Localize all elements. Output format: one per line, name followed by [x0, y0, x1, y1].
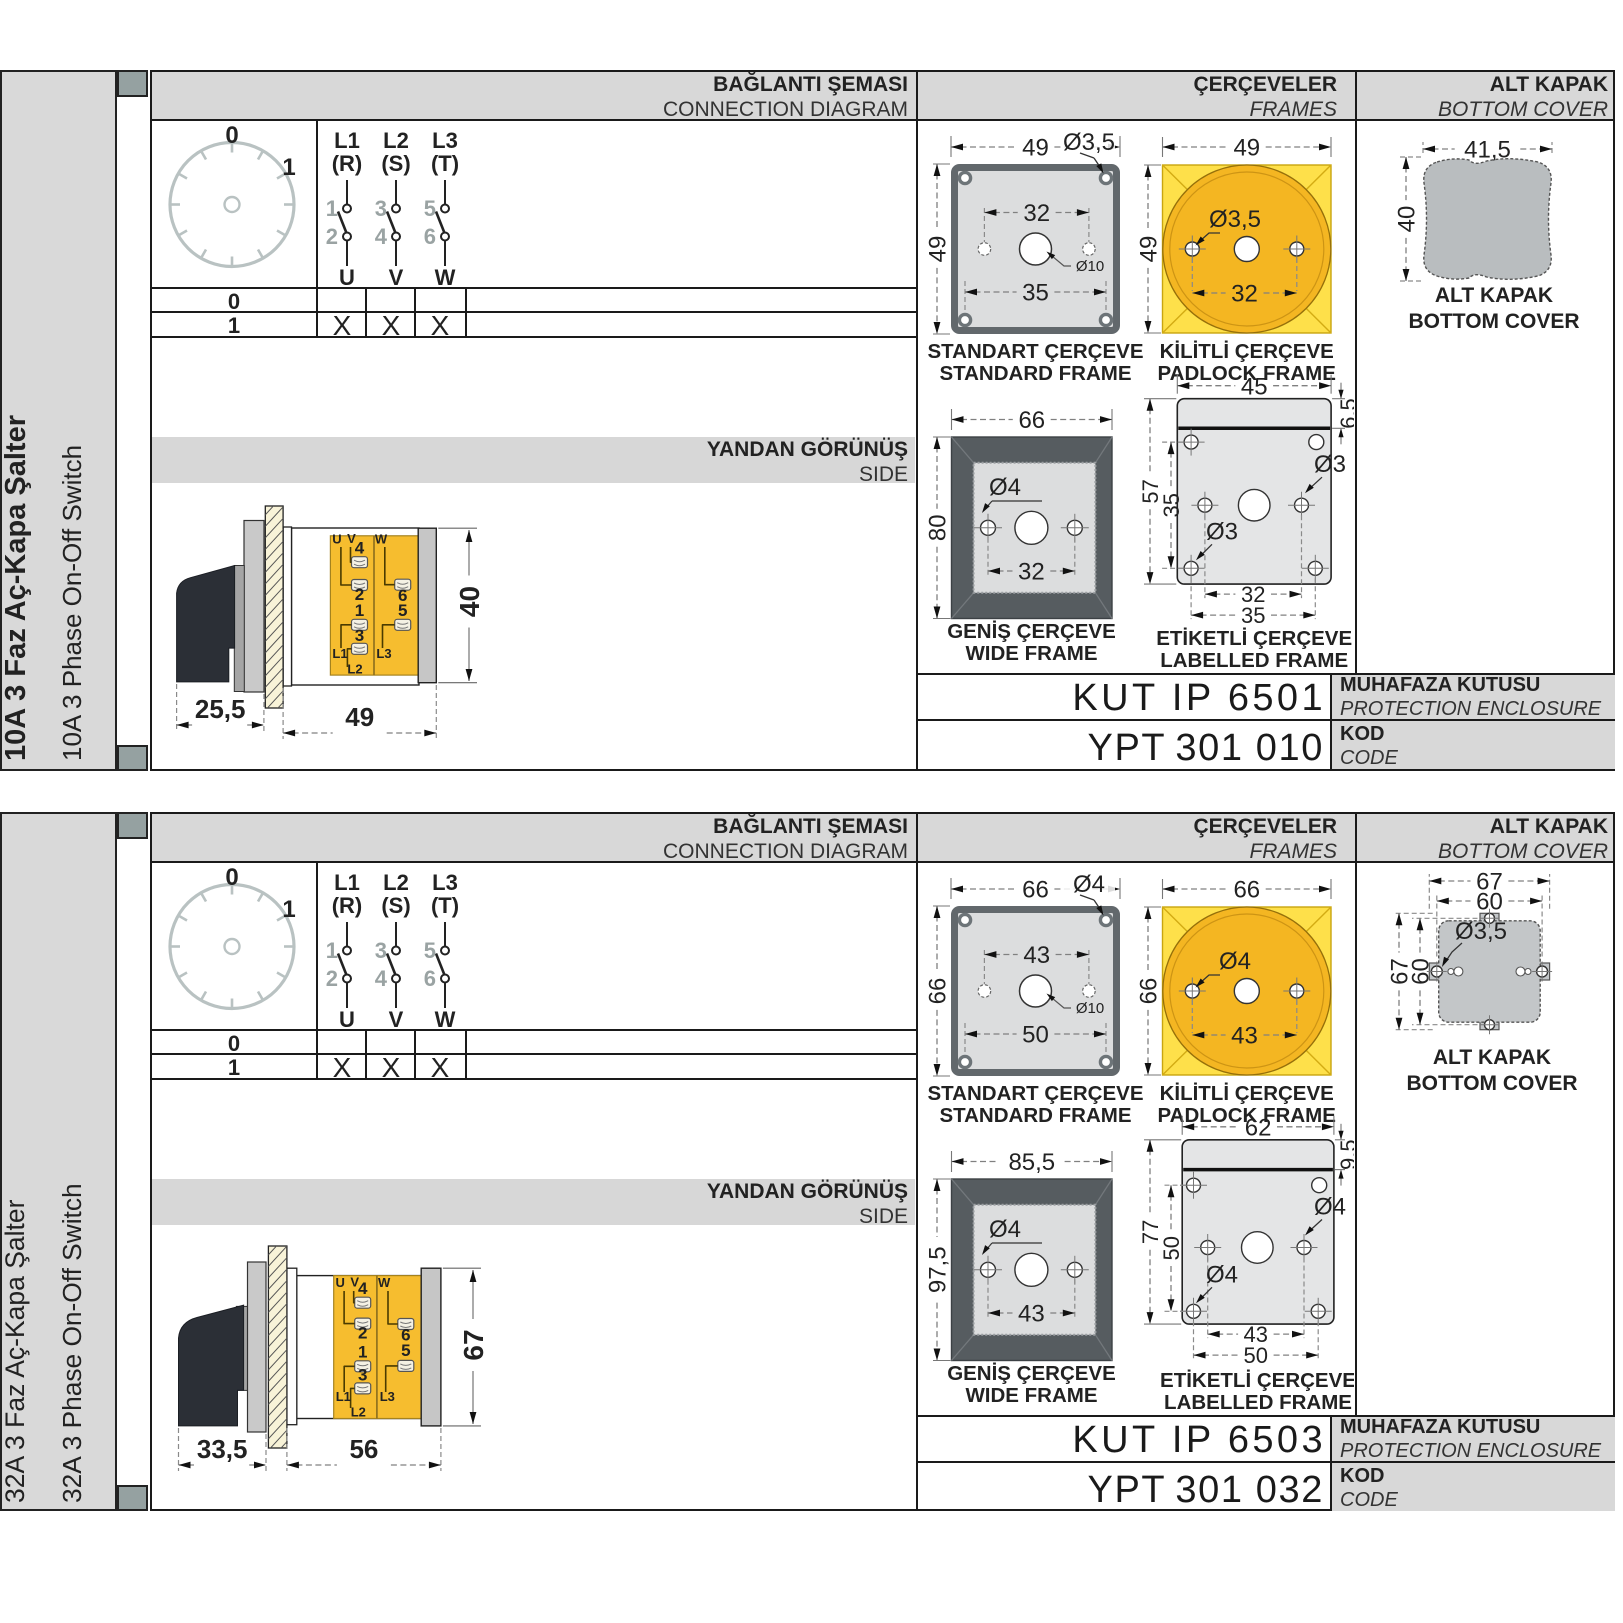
svg-text:W: W	[375, 531, 388, 546]
svg-text:1: 1	[282, 896, 295, 923]
svg-text:50: 50	[1244, 1343, 1268, 1368]
svg-text:LABELLED FRAME: LABELLED FRAME	[1164, 1391, 1352, 1413]
svg-text:4: 4	[375, 224, 388, 249]
svg-text:V: V	[389, 1007, 404, 1030]
svg-text:Ø4: Ø4	[1219, 948, 1251, 975]
svg-text:(R): (R)	[332, 151, 363, 176]
svg-text:W: W	[435, 1007, 456, 1030]
svg-text:L3: L3	[376, 646, 391, 661]
svg-text:2: 2	[358, 1324, 367, 1343]
svg-text:U: U	[339, 265, 355, 288]
svg-text:ETİKETLİ ÇERÇEVE: ETİKETLİ ÇERÇEVE	[1160, 1369, 1354, 1392]
svg-text:5: 5	[401, 1341, 410, 1360]
svg-text:5: 5	[424, 938, 436, 963]
svg-text:60: 60	[1476, 889, 1503, 916]
svg-text:50: 50	[1022, 1022, 1049, 1049]
svg-text:GENİŞ ÇERÇEVE: GENİŞ ÇERÇEVE	[947, 1362, 1116, 1385]
svg-text:66: 66	[1018, 407, 1045, 434]
svg-text:56: 56	[349, 1434, 378, 1464]
svg-text:Ø4: Ø4	[1073, 871, 1105, 898]
svg-text:STANDARD FRAME: STANDARD FRAME	[939, 362, 1131, 385]
svg-text:85,5: 85,5	[1008, 1149, 1055, 1176]
svg-text:66: 66	[1136, 978, 1163, 1005]
svg-text:43: 43	[1018, 1301, 1045, 1328]
svg-text:ETİKETLİ ÇERÇEVE: ETİKETLİ ÇERÇEVE	[1156, 627, 1352, 650]
svg-text:(R): (R)	[332, 893, 363, 918]
svg-text:3: 3	[375, 196, 387, 221]
svg-text:L2: L2	[347, 661, 362, 676]
svg-text:STANDARD FRAME: STANDARD FRAME	[939, 1104, 1131, 1127]
svg-text:W: W	[378, 1275, 391, 1290]
svg-text:W: W	[435, 265, 456, 288]
svg-text:97,5: 97,5	[925, 1246, 952, 1293]
svg-text:STANDART ÇERÇEVE: STANDART ÇERÇEVE	[927, 1082, 1143, 1105]
svg-text:40: 40	[454, 586, 485, 617]
svg-text:(T): (T)	[431, 893, 459, 918]
svg-text:3: 3	[375, 938, 387, 963]
svg-text:L2: L2	[383, 128, 409, 153]
svg-text:4: 4	[375, 966, 388, 991]
svg-text:L1: L1	[334, 128, 360, 153]
svg-text:49: 49	[1233, 135, 1260, 162]
svg-text:Ø3,5: Ø3,5	[1209, 206, 1261, 233]
svg-text:66: 66	[1233, 877, 1260, 904]
svg-text:ALT KAPAK: ALT KAPAK	[1435, 284, 1553, 307]
svg-text:KİLİTLİ ÇERÇEVE: KİLİTLİ ÇERÇEVE	[1160, 340, 1334, 363]
svg-text:KİLİTLİ ÇERÇEVE: KİLİTLİ ÇERÇEVE	[1160, 1082, 1334, 1105]
svg-text:67: 67	[458, 1329, 489, 1360]
svg-text:L1: L1	[332, 646, 347, 661]
svg-text:Ø4: Ø4	[1314, 1194, 1346, 1221]
svg-text:L3: L3	[432, 128, 458, 153]
svg-text:L1: L1	[336, 1389, 351, 1404]
svg-text:1: 1	[282, 154, 295, 181]
svg-text:3: 3	[355, 626, 364, 645]
svg-text:32: 32	[1231, 281, 1258, 308]
svg-text:LABELLED FRAME: LABELLED FRAME	[1160, 649, 1348, 671]
svg-text:9,5: 9,5	[1336, 1139, 1354, 1170]
svg-text:5: 5	[424, 196, 436, 221]
svg-text:80: 80	[925, 514, 952, 541]
svg-text:L1: L1	[334, 870, 360, 895]
svg-text:25,5: 25,5	[195, 694, 246, 724]
svg-text:(S): (S)	[381, 151, 410, 176]
svg-text:ALT KAPAK: ALT KAPAK	[1433, 1046, 1551, 1069]
svg-text:35: 35	[1022, 280, 1049, 307]
svg-text:4: 4	[355, 538, 365, 557]
svg-text:WIDE FRAME: WIDE FRAME	[965, 642, 1097, 665]
svg-text:Ø4: Ø4	[989, 474, 1021, 501]
svg-text:1: 1	[355, 601, 364, 620]
svg-text:41,5: 41,5	[1464, 137, 1511, 164]
svg-text:0: 0	[225, 122, 238, 149]
svg-text:(T): (T)	[431, 151, 459, 176]
svg-text:6: 6	[424, 966, 436, 991]
svg-text:Ø3: Ø3	[1206, 518, 1238, 545]
svg-text:32: 32	[1023, 200, 1050, 227]
svg-text:WIDE FRAME: WIDE FRAME	[965, 1384, 1097, 1407]
svg-text:(S): (S)	[381, 893, 410, 918]
svg-text:2: 2	[326, 224, 338, 249]
svg-text:35: 35	[1159, 493, 1184, 517]
svg-text:4: 4	[358, 1279, 368, 1298]
svg-text:V: V	[389, 265, 404, 288]
svg-text:STANDART ÇERÇEVE: STANDART ÇERÇEVE	[927, 340, 1143, 363]
svg-text:Ø10: Ø10	[1076, 258, 1104, 275]
svg-text:66: 66	[1022, 877, 1049, 904]
svg-text:1: 1	[358, 1343, 367, 1362]
svg-text:U: U	[332, 531, 341, 546]
svg-text:49: 49	[925, 236, 952, 263]
svg-text:49: 49	[1022, 135, 1049, 162]
svg-text:GENİŞ ÇERÇEVE: GENİŞ ÇERÇEVE	[947, 620, 1116, 643]
svg-text:L3: L3	[380, 1389, 395, 1404]
svg-text:32: 32	[1018, 559, 1045, 586]
svg-text:U: U	[339, 1007, 355, 1030]
svg-text:5: 5	[398, 601, 407, 620]
svg-text:Ø4: Ø4	[989, 1216, 1021, 1243]
svg-text:Ø3,5: Ø3,5	[1063, 129, 1115, 156]
svg-text:2: 2	[326, 966, 338, 991]
svg-text:49: 49	[1136, 236, 1163, 263]
svg-text:6: 6	[424, 224, 436, 249]
svg-text:Ø3: Ø3	[1314, 451, 1346, 478]
svg-text:L3: L3	[432, 870, 458, 895]
svg-text:35: 35	[1241, 603, 1265, 628]
svg-text:49: 49	[345, 702, 374, 732]
svg-text:50: 50	[1159, 1236, 1184, 1260]
svg-text:45: 45	[1241, 373, 1268, 400]
svg-text:Ø3,5: Ø3,5	[1455, 918, 1507, 945]
svg-text:62: 62	[1245, 1114, 1272, 1141]
svg-text:43: 43	[1231, 1023, 1258, 1050]
svg-text:1: 1	[326, 196, 338, 221]
svg-text:60: 60	[1408, 958, 1435, 985]
svg-text:66: 66	[925, 978, 952, 1005]
svg-text:0: 0	[225, 864, 238, 891]
svg-text:6,5: 6,5	[1336, 398, 1354, 429]
svg-text:BOTTOM COVER: BOTTOM COVER	[1408, 310, 1579, 333]
svg-text:L2: L2	[383, 870, 409, 895]
svg-text:40: 40	[1394, 206, 1421, 233]
svg-text:33,5: 33,5	[197, 1434, 248, 1464]
svg-text:3: 3	[358, 1366, 367, 1385]
svg-text:U: U	[336, 1275, 345, 1290]
svg-text:43: 43	[1023, 942, 1050, 969]
svg-text:Ø10: Ø10	[1076, 1000, 1104, 1017]
svg-text:Ø4: Ø4	[1206, 1261, 1238, 1288]
svg-text:BOTTOM COVER: BOTTOM COVER	[1406, 1072, 1577, 1095]
svg-text:L2: L2	[351, 1405, 366, 1420]
svg-text:1: 1	[326, 938, 338, 963]
